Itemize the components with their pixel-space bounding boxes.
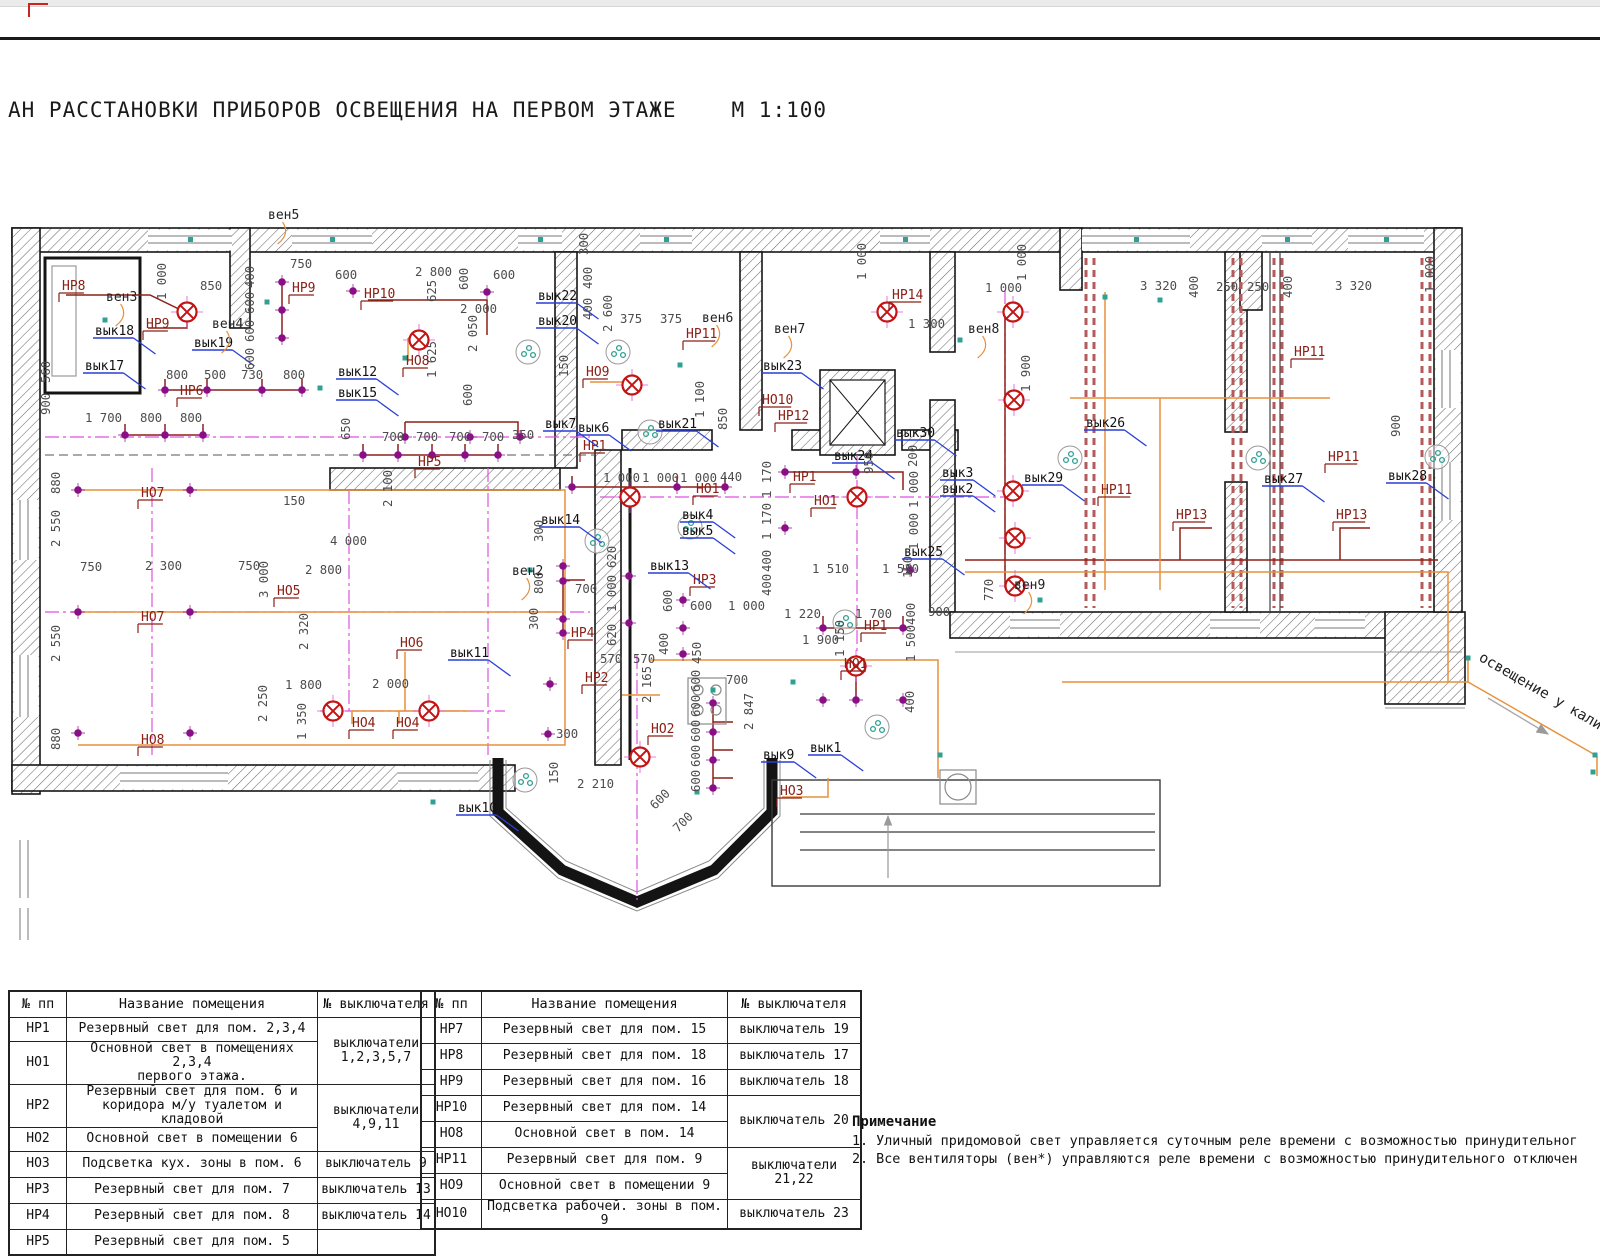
dimension-label: 900 (928, 605, 950, 619)
dimension-label: 3 320 (1140, 279, 1177, 293)
dimension-label: 400 (760, 574, 774, 596)
dimension-label: 400 (904, 603, 918, 625)
dimension-label: 250 (1216, 280, 1238, 294)
dimension-label: 850 (716, 408, 730, 430)
feed-label: НО5 (277, 584, 300, 599)
legend-table-left: № ппНазвание помещения№ выключателяНР1Ре… (8, 990, 436, 1256)
junction-mark-icon (1591, 770, 1596, 775)
feed-label: НО8 (141, 733, 164, 748)
switch-label: вык1 (810, 741, 841, 756)
legend-cell-name: Резервный свет для пом. 5 (67, 1229, 318, 1255)
spot-light-icon (625, 619, 633, 627)
spot-light-icon (483, 288, 491, 296)
dimension-label: 2 600 (601, 295, 615, 332)
feed-label: НР1 (793, 470, 816, 485)
walls (12, 228, 1465, 794)
spot-light-icon (721, 483, 729, 491)
dimension-label: 300 (556, 727, 578, 741)
switch-label: вык12 (338, 365, 377, 380)
junction-mark-icon (318, 386, 323, 391)
junction-mark-icon (1466, 656, 1471, 661)
dimension-label: 2 300 (145, 559, 182, 573)
switch-label: вык22 (538, 289, 577, 304)
dimension-label: 1 000 (1015, 244, 1029, 281)
floor-plan: НР8НР9НР9НР10НР6НР5НО8НО9НР11НР12НО10НР1… (0, 200, 1600, 940)
dimension-label: 700 (382, 430, 404, 444)
legend-cell-switch: выключатель 18 (728, 1069, 862, 1095)
feed-label: НР13 (1336, 508, 1367, 523)
legend-cell-name: Резервный свет для пом. 8 (67, 1203, 318, 1229)
spot-light-icon (852, 696, 860, 704)
dimension-label: 1 700 (855, 607, 892, 621)
junction-mark-icon (958, 338, 963, 343)
floor-plan-svg: НР8НР9НР9НР10НР6НР5НО8НО9НР11НР12НО10НР1… (0, 200, 1600, 940)
dimension-label: 150 (557, 355, 571, 377)
dimension-label: 700 (726, 673, 748, 687)
feed-label: НР11 (1328, 450, 1359, 465)
legend-cell-id: НР9 (421, 1069, 482, 1095)
legend-header: № пп (9, 991, 67, 1017)
feed-label: НР4 (571, 626, 595, 641)
legend-cell-name: Подсветка кух. зоны в пом. 6 (67, 1151, 318, 1177)
note-line-1: 1. Уличный придомовой свет управляется с… (852, 1133, 1600, 1151)
legend-cell-switch: выключатели 4,9,11 (318, 1084, 436, 1151)
dimension-label: 600 (457, 268, 471, 290)
legend-cell-switch: выключатель 13 (318, 1177, 436, 1203)
dimension-label: 620 (605, 624, 619, 646)
junction-mark-icon (711, 688, 716, 693)
junction-box-icon (516, 340, 540, 364)
dimension-label: 2 847 (742, 693, 756, 730)
legend-cell-name: Резервный свет для пом. 16 (482, 1069, 728, 1095)
junction-mark-icon (431, 800, 436, 805)
feed-label: НР9 (292, 281, 315, 296)
legend-cell-name: Резервный свет для пом. 18 (482, 1043, 728, 1069)
junction-mark-icon (1158, 298, 1163, 303)
spot-light-icon (258, 386, 266, 394)
note-line-2: 2. Все вентиляторы (вен*) управляются ре… (852, 1151, 1600, 1169)
spot-light-icon (544, 730, 552, 738)
dimension-label: 900 (39, 393, 53, 415)
dimension-label: 300 (527, 608, 541, 630)
dimension-label: 3 000 (257, 561, 271, 598)
dimension-label: 1 900 (1019, 355, 1033, 392)
dimension-label: 1 220 (784, 607, 821, 621)
legend-cell-switch: выключатель 23 (728, 1199, 862, 1229)
feed-label: НР11 (1101, 483, 1132, 498)
dimension-label: 2 800 (415, 265, 452, 279)
junction-mark-icon (938, 753, 943, 758)
dimension-label: 450 (690, 642, 704, 664)
dimension-label: 2 550 (49, 510, 63, 547)
notes-block: Примечание 1. Уличный придомовой свет уп… (852, 1114, 1600, 1169)
legend-cell-id: НО10 (421, 1199, 482, 1229)
dimension-label: 350 (512, 428, 534, 442)
dimension-label: 600 (335, 268, 357, 282)
shaft (820, 370, 895, 455)
junction-mark-icon (1038, 598, 1043, 603)
dimension-label: 800 (532, 572, 546, 594)
legend-cell-id: НО9 (421, 1173, 482, 1199)
drawing-scale: М 1:100 (732, 98, 828, 122)
dimension-label: 1 700 (85, 411, 122, 425)
spot-light-icon (709, 728, 717, 736)
spot-light-icon (199, 431, 207, 439)
dimension-label: 600 (690, 599, 712, 613)
legend-cell-id: НО8 (421, 1121, 482, 1147)
dimension-label: 600 (243, 320, 257, 342)
frame-rule (0, 37, 1600, 40)
feed-label: НР2 (585, 671, 608, 686)
legend-cell-name: Основной свет в пом. 14 (482, 1121, 728, 1147)
spot-light-icon (461, 451, 469, 459)
dimension-label: 700 (575, 582, 597, 596)
dimension-label: 1 000 (985, 281, 1022, 295)
dimension-label: 1 000 (855, 243, 869, 280)
legend-header: Название помещения (67, 991, 318, 1017)
spot-light-icon (278, 306, 286, 314)
dimension-label: 800 (283, 368, 305, 382)
feed-label: НР12 (778, 409, 809, 424)
dimension-label: 770 (982, 579, 996, 601)
legend-cell-name: Резервный свет для пом. 6 и коридора м/у… (67, 1084, 318, 1127)
dimension-label: 400 (1281, 276, 1295, 298)
legend-cell-switch: выключатель 14 (318, 1203, 436, 1229)
dimension-label: 800 (166, 368, 188, 382)
legend-cell-switch: выключатель 9 (318, 1151, 436, 1177)
legend-table-right: № ппНазвание помещения№ выключателяНР7Ре… (420, 990, 862, 1230)
dimension-label: 800 (180, 411, 202, 425)
dimension-label: 400 (760, 550, 774, 572)
dimension-label: 730 (241, 368, 263, 382)
dimension-label: 1 500 (904, 625, 918, 662)
spot-light-icon (278, 278, 286, 286)
fan-label: вен9 (1014, 578, 1045, 593)
feed-label: НР11 (686, 327, 717, 342)
dimension-label: 440 (720, 470, 742, 484)
gate-direction-arrow (1488, 698, 1548, 734)
dimension-label: 1 100 (693, 381, 707, 418)
dimension-label: 2 100 (381, 470, 395, 507)
feed-label: НО2 (651, 722, 674, 737)
dimension-label: 600 (461, 384, 475, 406)
spot-light-icon (74, 486, 82, 494)
spot-light-icon (568, 483, 576, 491)
switch-label: вык11 (450, 646, 489, 661)
dimension-label: 560 (39, 361, 53, 383)
dimension-label: 880 (49, 472, 63, 494)
legend-cell-id: НО3 (9, 1151, 67, 1177)
dimension-label: 600 (493, 268, 515, 282)
feed-label: НО7 (141, 610, 164, 625)
legend-header: № выключателя (728, 991, 862, 1017)
switch-label: вык3 (942, 466, 973, 481)
porch-stairs (772, 652, 1465, 886)
legend-cell-id: НР2 (9, 1084, 67, 1127)
junction-mark-icon (265, 300, 270, 305)
dimension-label: 1 000 (728, 599, 765, 613)
legend-cell-switch: выключатели 21,22 (728, 1147, 862, 1199)
dimension-label: 400 (1187, 276, 1201, 298)
dimension-label: 1 000 (907, 471, 921, 508)
legend-cell-id: НР8 (421, 1043, 482, 1069)
feed-label: НР13 (1176, 508, 1207, 523)
dimension-label: 400 (903, 691, 917, 713)
spot-light-icon (709, 699, 717, 707)
spot-light-icon (819, 624, 827, 632)
dimension-label: 620 (605, 546, 619, 568)
feed-label: НР8 (62, 279, 85, 294)
dimension-label: 1 000 (680, 471, 717, 485)
legend-cell-switch: выключатель 17 (728, 1043, 862, 1069)
spot-light-icon (781, 468, 789, 476)
spot-light-icon (679, 596, 687, 604)
dimension-label: 250 (1247, 280, 1269, 294)
spot-light-icon (394, 451, 402, 459)
dimension-label: 600 (689, 670, 703, 692)
spot-light-icon (74, 729, 82, 737)
dimension-label: 1 000 (603, 471, 640, 485)
dimension-label: 1 800 (285, 678, 322, 692)
switch-label: вык20 (538, 314, 577, 329)
legend-cell-switch: выключатели 1,2,3,5,7 (318, 1017, 436, 1084)
legend-cell-id: НР5 (9, 1229, 67, 1255)
dimension-label: 625 (425, 280, 439, 302)
dimension-label: 300 (577, 233, 591, 255)
switch-label: вык21 (658, 417, 697, 432)
dimension-label: 1 170 (760, 461, 774, 498)
switch-label: вык30 (896, 426, 935, 441)
switch-label: вык17 (85, 359, 124, 374)
spot-light-icon (494, 451, 502, 459)
spot-light-icon (679, 624, 687, 632)
dimension-label: 570 (600, 652, 622, 666)
feed-label: НР1 (583, 439, 606, 454)
dimension-label: 500 (204, 368, 226, 382)
legend-cell-id: НР11 (421, 1147, 482, 1173)
dimension-label: 750 (80, 560, 102, 574)
dimension-label: 2 050 (466, 315, 480, 352)
switch-label: вык18 (95, 324, 134, 339)
feed-label: НР3 (693, 573, 716, 588)
spot-light-icon (203, 386, 211, 394)
dimension-label: 600 (243, 348, 257, 370)
legend-cell-name: Резервный свет для пом. 9 (482, 1147, 728, 1173)
legend-cell-id: НР3 (9, 1177, 67, 1203)
dimension-label: 900 (1389, 415, 1403, 437)
switch-label: вык6 (578, 421, 609, 436)
spot-light-icon (625, 572, 633, 580)
top-scroll-strip (0, 0, 1600, 7)
legend-cell-name: Резервный свет для пом. 2,3,4 (67, 1017, 318, 1041)
feed-label: НО4 (396, 716, 420, 731)
spot-light-icon (161, 386, 169, 394)
dimension-label: 1 000 (605, 575, 619, 612)
dimension-label: 950 (862, 452, 876, 474)
feed-label: НО10 (762, 393, 793, 408)
legend-cell-switch: выключатель 20 (728, 1095, 862, 1147)
dimension-label: 2 000 (460, 302, 497, 316)
legend-cell-name: Подсветка рабочей. зоны в пом. 9 (482, 1199, 728, 1229)
switch-label: вык9 (763, 748, 794, 763)
dimension-label: 400 (657, 633, 671, 655)
dimension-label: 1 000 (642, 471, 679, 485)
spot-light-icon (359, 451, 367, 459)
dimension-label: 1 510 (812, 562, 849, 576)
dimension-label: 600 (647, 787, 673, 813)
dimension-label: 2 250 (256, 685, 270, 722)
junction-mark-icon (103, 318, 108, 323)
junction-box-icon (1425, 445, 1449, 469)
legend-cell-name: Резервный свет для пом. 7 (67, 1177, 318, 1203)
dimension-label: 880 (49, 728, 63, 750)
dimension-label: 2 000 (372, 677, 409, 691)
junction-mark-icon (678, 363, 683, 368)
dimension-label: 1 000 (1423, 256, 1437, 293)
dimension-label: 1 300 (908, 317, 945, 331)
dimension-label: 150 (547, 762, 561, 784)
feed-label: НР9 (146, 317, 169, 332)
dimension-label: 200 (906, 445, 920, 467)
dimension-label: 2 165 (640, 666, 654, 703)
spot-light-icon (186, 729, 194, 737)
switch-label: вык27 (1264, 472, 1303, 487)
junction-box-icon (1246, 446, 1270, 470)
dimension-label: 700 (416, 430, 438, 444)
dimension-label: 150 (901, 556, 915, 578)
fan-label: вен5 (268, 208, 299, 223)
spot-light-icon (679, 650, 687, 658)
drawing-title: АН РАССТАНОВКИ ПРИБОРОВ ОСВЕЩЕНИЯ НА ПЕР… (8, 98, 827, 122)
dimension-label: 1 170 (760, 503, 774, 540)
legend-header: № пп (421, 991, 482, 1017)
legend-cell-id: НР1 (9, 1017, 67, 1041)
dimension-label: 600 (661, 590, 675, 612)
spot-light-icon (186, 608, 194, 616)
dimension-label: 2 210 (577, 777, 614, 791)
feed-label: НР10 (364, 287, 395, 302)
spot-light-icon (559, 577, 567, 585)
spot-light-icon (546, 680, 554, 688)
switch-label: вык19 (194, 336, 233, 351)
dimension-label: 300 (532, 520, 546, 542)
dimension-label: 400 (581, 267, 595, 289)
spot-light-icon (781, 524, 789, 532)
spot-light-icon (709, 756, 717, 764)
drawing-page: { "page": { "title": "АН РАССТАНОВКИ ПРИ… (0, 0, 1600, 1200)
legend-header: Название помещения (482, 991, 728, 1017)
dimension-label: 650 (339, 418, 353, 440)
legend-cell-name: Основной свет в помещении 9 (482, 1173, 728, 1199)
feed-label: НО6 (400, 636, 423, 651)
red-corner-mark-icon (28, 3, 48, 17)
legend-cell-name: Резервный свет для пом. 15 (482, 1017, 728, 1043)
legend-cell-id: НР7 (421, 1017, 482, 1043)
dimension-label: 1 150 (833, 620, 847, 657)
feed-label: НР1 (864, 619, 887, 634)
spot-light-icon (852, 468, 860, 476)
dimension-label: 700 (449, 430, 471, 444)
fan-label: вен4 (212, 317, 243, 332)
junction-mark-icon (791, 680, 796, 685)
feed-label: НО9 (586, 365, 609, 380)
dimension-label: 375 (620, 312, 642, 326)
feed-label: НР5 (418, 455, 441, 470)
switch-label: вык23 (763, 359, 802, 374)
notes-title: Примечание (852, 1114, 1600, 1130)
switch-label: вык14 (541, 513, 580, 528)
dimension-label: 1 000 (907, 513, 921, 550)
spot-light-icon (349, 287, 357, 295)
dimension-label: 375 (660, 312, 682, 326)
feed-label: НР14 (892, 288, 923, 303)
switch-label: вык10 (458, 801, 497, 816)
dimension-label: 150 (283, 494, 305, 508)
spot-light-icon (74, 608, 82, 616)
legend-cell-switch: выключатель 19 (728, 1017, 862, 1043)
feed-label: НР6 (180, 384, 203, 399)
switch-label: вык28 (1388, 469, 1427, 484)
switch-label: вык15 (338, 386, 377, 401)
dimension-label: 600 (689, 770, 703, 792)
fan-label: вен7 (774, 322, 805, 337)
dimension-label: 3 320 (1335, 279, 1372, 293)
spot-light-icon (559, 562, 567, 570)
feed-label: НО3 (780, 784, 803, 799)
dimension-label: 2 320 (297, 613, 311, 650)
dimension-label: 850 (200, 279, 222, 293)
dimension-label: 400 (243, 266, 257, 288)
junction-box-icon (865, 715, 889, 739)
dimension-label: 1 000 (155, 263, 169, 300)
spot-light-icon (559, 615, 567, 623)
legend-cell-id: НО1 (9, 1041, 67, 1084)
legend-cell-switch (318, 1229, 436, 1255)
fan-label: вен3 (106, 290, 137, 305)
switch-label: вык4 (682, 508, 713, 523)
feed-label: НР11 (1294, 345, 1325, 360)
title-text: АН РАССТАНОВКИ ПРИБОРОВ ОСВЕЩЕНИЯ НА ПЕР… (8, 98, 677, 122)
feed-label: НО4 (352, 716, 376, 731)
spot-light-icon (186, 486, 194, 494)
dimension-label: 1 350 (295, 703, 309, 740)
junction-box-icon (606, 340, 630, 364)
legend-header: № выключателя (318, 991, 436, 1017)
junction-mark-icon (1103, 295, 1108, 300)
legend-cell-id: НР10 (421, 1095, 482, 1121)
dimension-label: 600 (689, 720, 703, 742)
spot-light-icon (121, 431, 129, 439)
feed-label: НО1 (814, 494, 837, 509)
dimension-label: 600 (689, 745, 703, 767)
dimension-label: 1 625 (425, 341, 439, 378)
junction-mark-icon (1593, 753, 1598, 758)
dimension-label: 700 (482, 430, 504, 444)
fan-label: вен6 (702, 311, 733, 326)
feed-label: НО1 (844, 657, 867, 672)
feed-label: НО7 (141, 486, 164, 501)
switch-label: вык29 (1024, 471, 1063, 486)
legend-cell-name: Основной свет в помещении 6 (67, 1127, 318, 1151)
dimension-label: 750 (290, 257, 312, 271)
spot-light-icon (709, 784, 717, 792)
dimension-label: 4 000 (330, 534, 367, 548)
spot-light-icon (819, 696, 827, 704)
dimension-label: 700 (670, 810, 696, 836)
dimension-label: 600 (243, 292, 257, 314)
dimension-label: 570 (633, 652, 655, 666)
switch-label: вык5 (682, 524, 713, 539)
